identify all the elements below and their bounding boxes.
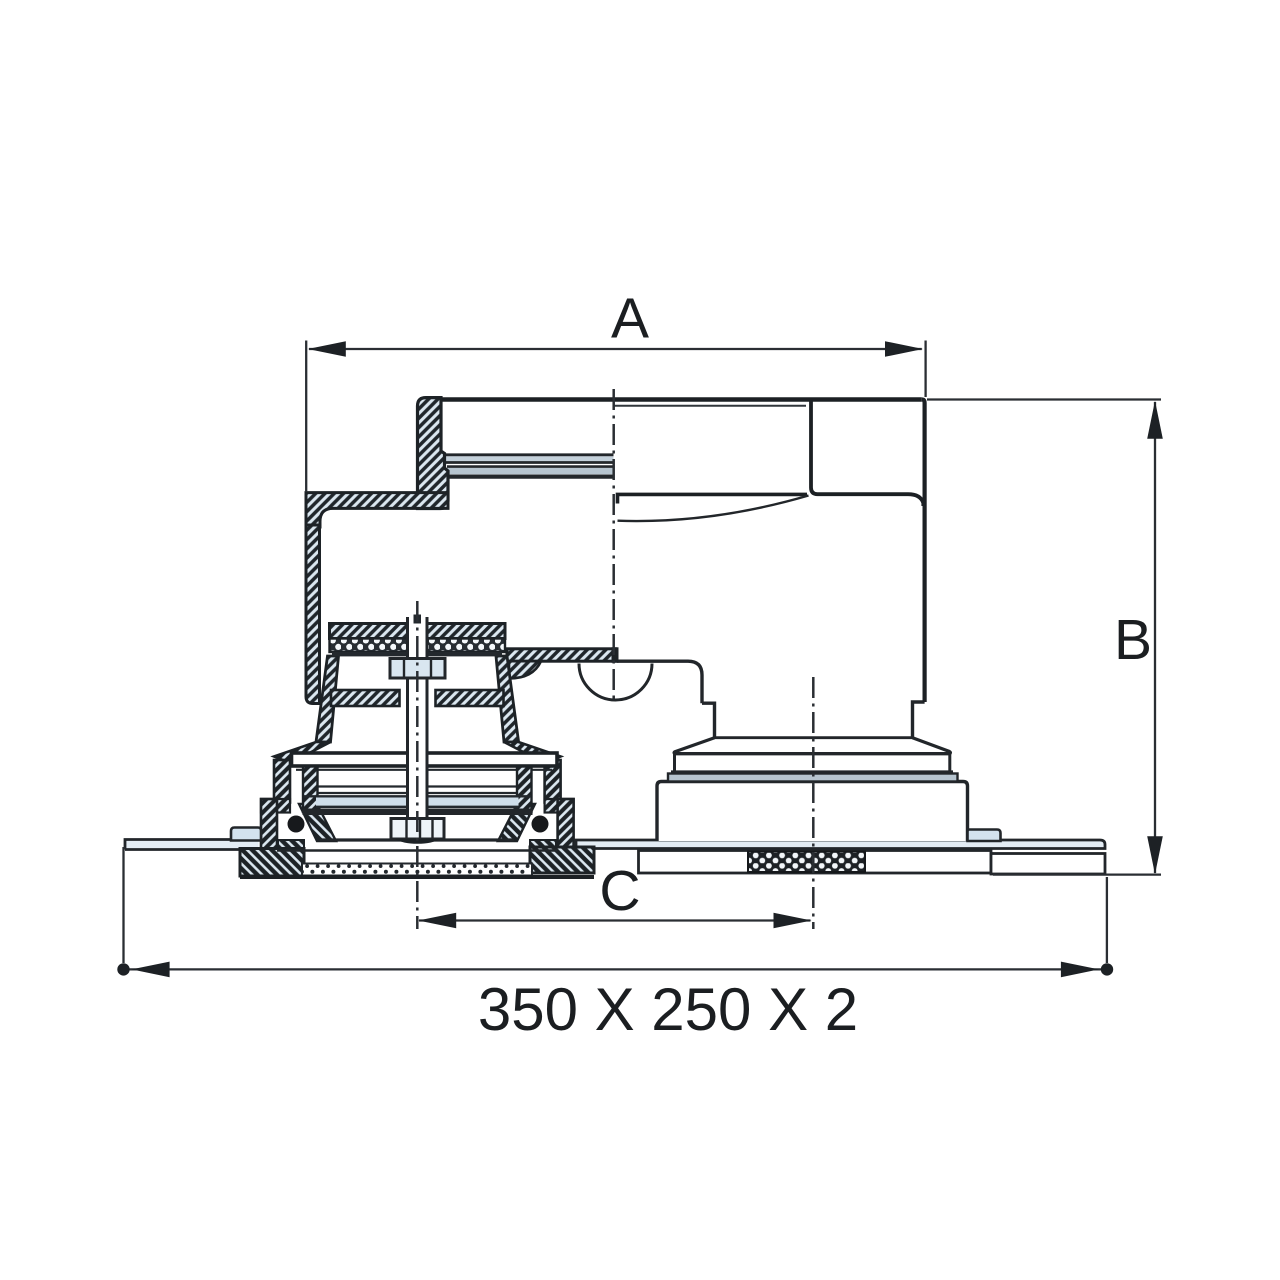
svg-text:B: B: [1114, 608, 1152, 672]
svg-text:350 X 250 X 2: 350 X 250 X 2: [478, 976, 858, 1043]
svg-text:C: C: [599, 859, 640, 923]
svg-text:A: A: [611, 287, 649, 351]
